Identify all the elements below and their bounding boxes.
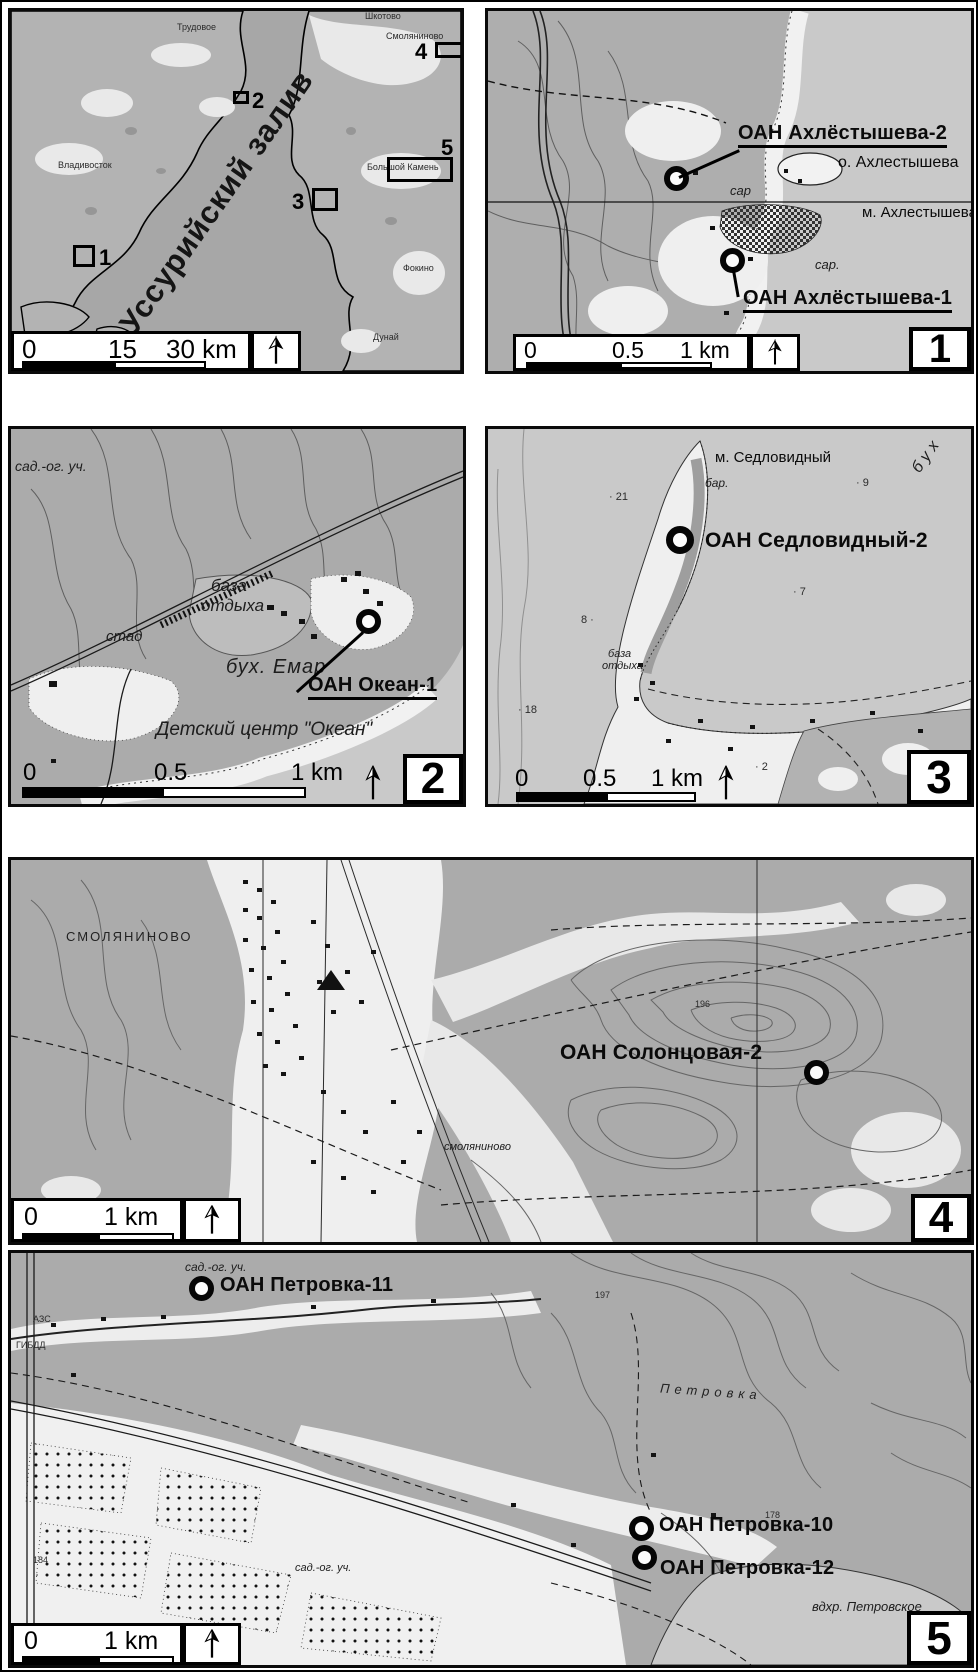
elevation-197: 197 [595,1291,610,1300]
scale-tick-1km: 1 km [104,1627,158,1656]
map-label-gas-station: АЗС [33,1315,51,1324]
depth-18: · 18 [518,705,537,717]
map-label-reservoir: вдхр. Петровское [812,1600,922,1614]
scale-segment-white [114,361,206,369]
scale-tick-0: 0 [23,759,36,787]
depth-7: · 7 [793,587,806,599]
town-label-vladivostok: Владивосток [58,161,112,170]
scale-tick-0: 0 [515,765,528,793]
map-label-shed-b: сар. [815,258,840,272]
scale-segment-white [620,362,712,369]
north-arrow-icon [766,338,784,368]
area-box-3 [312,188,338,211]
depth-8: 8 · [581,615,594,627]
depth-2: · 2 [755,762,768,774]
map-label-stadium: стад [106,629,142,645]
site-marker-petrovka-11 [189,1276,214,1301]
town-label-trudovoe: Трудовое [177,23,216,32]
scale-tick-05: 0.5 [154,759,187,787]
map-label-island: о. Ахлестышева [838,155,958,172]
town-label-shkotovo: Шкотово [365,12,401,21]
elevation-196: 196 [695,1000,710,1009]
map-label-gibdd: ГИБДД [16,1341,45,1350]
scale-segment-black [22,1656,98,1664]
panel-4-solontsovaya: СМОЛЯНИНОВО 196 ОАН Солонцовая-2 смоляни… [8,857,974,1245]
map-label-camp-line1: база [211,577,247,595]
scale-bar: 0 1 km [11,1198,183,1242]
scale-bar: 0 0.5 1 km [513,334,750,371]
map-label-bar: бар. [705,477,728,490]
area-box-5-number: 5 [441,135,453,161]
north-arrow-box [750,334,800,371]
site-label-solontsovaya-2: ОАН Солонцовая-2 [560,1042,762,1064]
area-box-1 [73,245,95,267]
area-box-2-number: 2 [252,88,264,114]
site-marker-petrovka-12 [632,1545,657,1570]
north-arrow-icon [363,763,383,803]
depth-9: · 9 [856,478,869,490]
panel-2-okean: сад.-ог. уч. база отдыха стад бух. Емар … [8,426,466,807]
scale-tick-1km: 1 km [291,759,343,787]
panel-number-box: 1 [909,327,971,371]
site-label-akhlestysheva-1: ОАН Ахлёстышева-1 [743,288,952,313]
north-arrow-icon [202,1628,222,1660]
north-arrow-icon [266,335,286,367]
map-label-camp-line2: отдыха [201,597,264,615]
north-arrow-icon [716,763,736,803]
elevation-184: 184 [33,1556,48,1565]
site-label-okean-1: ОАН Океан-1 [308,675,437,700]
scale-tick-1km: 1 km [104,1203,158,1232]
scale-segment-white [98,1233,174,1241]
scale-tick-1km: 1 km [651,765,703,793]
panel-number-box: 4 [911,1194,971,1242]
map-label-camp-line1: база [608,649,631,661]
scale-segment-black [526,362,620,369]
map-label-garden-bottom: сад.-ог. уч. [295,1563,351,1575]
map-label-shed-a: сар [730,184,751,198]
map-artwork [11,429,463,804]
panel-number: 5 [926,1611,952,1665]
scale-tick-0: 0 [524,337,537,364]
site-marker-petrovka-10 [629,1516,654,1541]
area-box-3-number: 3 [292,189,304,215]
panel-number: 1 [929,327,951,372]
map-label-garden-top: сад.-ог. уч. [185,1261,246,1274]
map-label-cape-sedlovidny: м. Седловидный [715,450,831,466]
panel-3-sedlovidny: м. Седловидный бар. бух · 21 · 9 ОАН Сед… [485,426,974,807]
town-label-fokino: Фокино [403,264,434,273]
scale-segment-white [606,792,696,802]
map-label-garden-plots: сад.-ог. уч. [15,459,87,474]
site-marker-solontsovaya-2 [804,1060,829,1085]
area-box-4-number: 4 [415,39,427,65]
scale-segment-white [98,1656,174,1664]
scale-tick-0: 0 [24,1203,38,1232]
area-box-4 [435,42,464,58]
scale-bar-overview: 0 15 30 km [11,331,251,371]
map-label-camp-line2: отдыха [602,661,643,673]
area-box-1-number: 1 [99,245,111,271]
scale-tick-05: 0.5 [583,765,616,793]
panel-1-akhlestysheva: ОАН Ахлёстышева-2 сар о. Ахлестышева м. … [485,8,974,374]
panel-number-box: 5 [907,1611,971,1665]
map-label-children-center: Детский центр "Океан" [156,720,372,740]
site-label-akhlestysheva-2: ОАН Ахлёстышева-2 [738,123,947,148]
scale-segment-white [162,787,306,798]
map-artwork [11,860,971,1242]
scale-segment-black [22,361,114,369]
panel-5-petrovka: сад.-ог. уч. ОАН Петровка-11 197 АЗС ГИБ… [8,1250,974,1668]
town-label-dunay: Дунай [373,333,399,342]
panel-number: 2 [421,754,445,804]
map-label-smolyaninovo-caps: СМОЛЯНИНОВО [66,930,193,944]
site-label-petrovka-10: ОАН Петровка-10 [659,1515,833,1536]
panel-number: 4 [929,1193,953,1243]
site-label-petrovka-12: ОАН Петровка-12 [660,1558,834,1579]
map-label-smolyaninovo-small: смоляниново [444,1142,511,1154]
scale-bar: 0 1 km [11,1623,183,1665]
site-marker-sedlovidny-2 [666,526,694,554]
panel-number-box: 2 [403,754,463,804]
north-arrow-box [251,331,301,371]
map-artwork [488,429,971,804]
scale-segment-black [22,1233,98,1241]
scale-segment-black [22,787,162,798]
site-marker-akhlestysheva-2 [664,166,689,191]
area-box-2 [233,91,249,104]
site-label-sedlovidny-2: ОАН Седловидный-2 [705,530,928,552]
scale-tick-05: 0.5 [612,337,644,364]
scale-tick-0: 0 [24,1627,38,1656]
map-label-cape: м. Ахлестышева [862,205,974,221]
panel-number: 3 [926,750,952,804]
figure-map-plate: Шкотово Трудовое Смоляниново Владивосток… [0,0,978,1672]
scale-tick-1km: 1 km [680,337,730,364]
scale-segment-black [516,792,606,802]
site-label-petrovka-11: ОАН Петровка-11 [220,1275,393,1296]
north-arrow-box [183,1198,241,1242]
depth-21: · 21 [609,492,628,504]
site-marker-okean-1 [356,609,381,634]
north-arrow-box [183,1623,241,1665]
panel-number-box: 3 [907,750,971,804]
north-arrow-icon [202,1203,222,1237]
panel-overview: Шкотово Трудовое Смоляниново Владивосток… [8,8,464,374]
